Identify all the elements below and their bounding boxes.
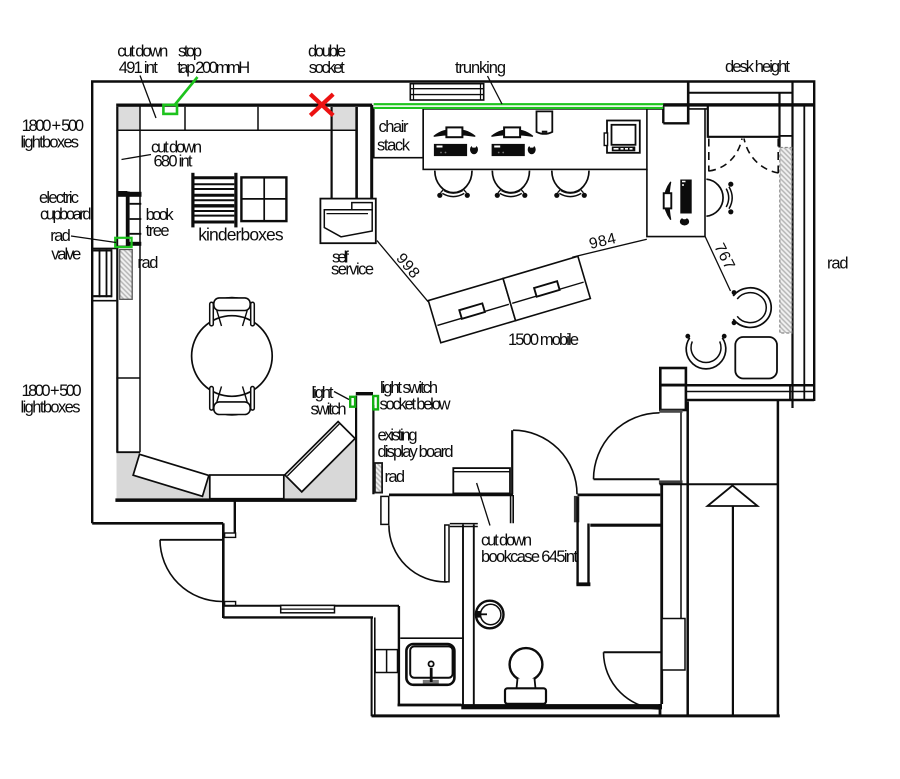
svg-text:680 int: 680 int bbox=[154, 153, 193, 171]
svg-text:socket: socket bbox=[309, 59, 345, 77]
svg-text:trunking: trunking bbox=[455, 59, 506, 77]
svg-text:electric: electric bbox=[39, 189, 79, 207]
svg-text:existing: existing bbox=[378, 427, 418, 445]
svg-text:rad: rad bbox=[385, 468, 406, 486]
svg-text:cut down: cut down bbox=[117, 43, 168, 61]
svg-text:cut down: cut down bbox=[481, 532, 532, 550]
svg-text:stop: stop bbox=[178, 43, 202, 61]
svg-text:double: double bbox=[308, 43, 346, 61]
svg-text:chair: chair bbox=[379, 118, 410, 136]
svg-text:kinderboxes: kinderboxes bbox=[198, 225, 284, 245]
svg-text:rad: rad bbox=[137, 254, 158, 272]
svg-text:display board: display board bbox=[378, 443, 454, 461]
svg-text:rad: rad bbox=[50, 227, 71, 245]
svg-text:lightboxes: lightboxes bbox=[21, 134, 80, 152]
svg-text:1800 + 500: 1800 + 500 bbox=[22, 382, 82, 400]
svg-text:socket below: socket below bbox=[380, 396, 451, 414]
svg-text:stack: stack bbox=[377, 137, 411, 155]
svg-text:tree: tree bbox=[146, 222, 170, 240]
svg-text:light: light bbox=[312, 384, 334, 402]
svg-text:cupboard: cupboard bbox=[40, 206, 92, 224]
svg-text:light switch: light switch bbox=[380, 379, 438, 397]
svg-text:valve: valve bbox=[51, 246, 81, 264]
svg-text:service: service bbox=[331, 261, 374, 279]
svg-text:tap 200mmH: tap 200mmH bbox=[177, 59, 250, 77]
svg-text:1500 mobile: 1500 mobile bbox=[508, 331, 579, 349]
svg-text:switch: switch bbox=[311, 401, 347, 419]
svg-text:lightboxes: lightboxes bbox=[21, 399, 81, 417]
svg-text:bookcase 645int: bookcase 645int bbox=[481, 548, 578, 566]
svg-text:rad: rad bbox=[827, 255, 849, 273]
svg-text:1800 + 500: 1800 + 500 bbox=[22, 117, 85, 135]
svg-text:desk height: desk height bbox=[725, 58, 790, 76]
svg-text:491 int: 491 int bbox=[119, 59, 158, 77]
